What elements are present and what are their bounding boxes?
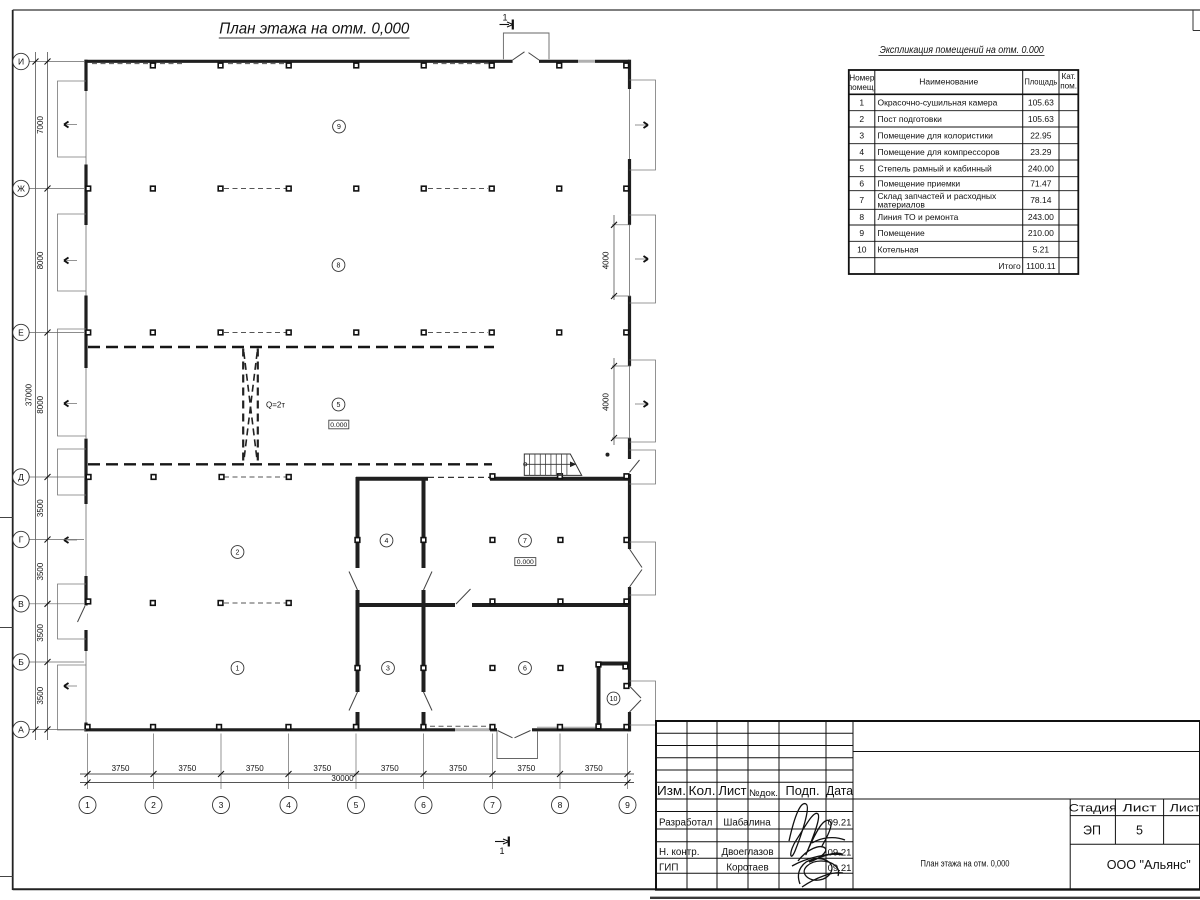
svg-text:210.00: 210.00	[1028, 228, 1054, 238]
svg-text:1: 1	[236, 666, 240, 673]
svg-text:3: 3	[219, 800, 224, 810]
svg-text:78.14: 78.14	[1030, 195, 1052, 205]
svg-text:240.00: 240.00	[1028, 163, 1054, 173]
svg-text:3500: 3500	[36, 623, 45, 641]
svg-text:3: 3	[859, 130, 864, 140]
svg-text:2: 2	[151, 800, 156, 810]
svg-text:Окрасочно-сушильная камера: Окрасочно-сушильная камера	[878, 98, 998, 108]
svg-text:Н. контр.: Н. контр.	[659, 847, 699, 858]
svg-text:Д: Д	[18, 472, 24, 482]
svg-text:Разработал: Разработал	[659, 818, 713, 829]
svg-text:Б: Б	[18, 657, 24, 667]
svg-text:Кол.: Кол.	[689, 784, 716, 798]
svg-text:9: 9	[625, 800, 630, 810]
svg-text:Степель рамный и кабинный: Степель рамный и кабинный	[878, 163, 993, 173]
svg-text:Изм.: Изм.	[657, 784, 686, 798]
svg-text:ГИП: ГИП	[659, 863, 678, 874]
svg-text:8: 8	[337, 263, 341, 270]
svg-text:Помещение для колористики: Помещение для колористики	[878, 130, 994, 140]
svg-text:23.29: 23.29	[1030, 147, 1052, 157]
svg-text:3500: 3500	[36, 499, 45, 517]
svg-text:Коротаев: Коротаев	[726, 863, 768, 874]
svg-text:2: 2	[236, 550, 240, 557]
svg-text:В: В	[18, 599, 24, 609]
svg-text:Листов: Листов	[1170, 802, 1200, 814]
svg-text:№док.: №док.	[749, 788, 778, 799]
svg-text:7: 7	[490, 800, 495, 810]
svg-text:Ж: Ж	[17, 184, 25, 194]
svg-text:помещ.: помещ.	[848, 83, 876, 92]
svg-text:Экспликация помещений на отм.: Экспликация помещений на отм. 0.000	[880, 45, 1044, 56]
svg-text:Помещение приемки: Помещение приемки	[878, 179, 961, 189]
svg-text:Пост подготовки: Пост подготовки	[878, 114, 943, 124]
svg-text:3750: 3750	[449, 764, 467, 773]
svg-text:А: А	[18, 725, 24, 735]
svg-text:Лист: Лист	[1123, 802, 1157, 814]
svg-text:1100.11: 1100.11	[1026, 261, 1056, 271]
svg-text:Номер: Номер	[849, 74, 875, 83]
svg-text:Котельная: Котельная	[878, 245, 920, 255]
svg-text:материалов: материалов	[878, 199, 926, 209]
svg-text:1: 1	[859, 98, 864, 108]
svg-text:1: 1	[85, 800, 90, 810]
svg-text:ООО "Альянс": ООО "Альянс"	[1107, 858, 1191, 872]
svg-text:ЭП: ЭП	[1083, 824, 1101, 838]
svg-text:Помещение: Помещение	[878, 228, 925, 238]
svg-text:9: 9	[337, 124, 341, 131]
svg-text:105.63: 105.63	[1028, 98, 1054, 108]
svg-text:Двоеглазов: Двоеглазов	[721, 847, 773, 858]
svg-text:Площадь: Площадь	[1024, 77, 1057, 87]
svg-text:Наименование: Наименование	[919, 77, 978, 87]
svg-text:71.47: 71.47	[1030, 179, 1052, 189]
svg-text:5: 5	[859, 163, 864, 173]
svg-text:243.00: 243.00	[1028, 212, 1054, 222]
svg-text:3: 3	[386, 666, 390, 673]
svg-text:Е: Е	[18, 328, 24, 338]
svg-text:4000: 4000	[602, 393, 611, 411]
svg-text:5: 5	[1136, 824, 1143, 838]
svg-text:6: 6	[421, 800, 426, 810]
svg-text:И: И	[18, 57, 24, 67]
svg-text:Шабалина: Шабалина	[723, 818, 771, 829]
svg-text:Помещение для компрессоров: Помещение для компрессоров	[878, 147, 1001, 157]
svg-text:10: 10	[857, 245, 867, 255]
svg-text:9: 9	[859, 228, 864, 238]
svg-text:Г: Г	[19, 535, 24, 545]
svg-text:0.000: 0.000	[330, 422, 347, 429]
svg-text:3750: 3750	[381, 764, 399, 773]
svg-text:Линия ТО и ремонта: Линия ТО и ремонта	[878, 212, 959, 222]
svg-text:30000: 30000	[331, 774, 354, 783]
svg-text:5.21: 5.21	[1033, 245, 1050, 255]
svg-text:Дата: Дата	[826, 784, 853, 798]
svg-text:8: 8	[859, 212, 864, 222]
svg-text:4: 4	[859, 147, 864, 157]
svg-text:3500: 3500	[36, 562, 45, 580]
svg-text:7: 7	[859, 195, 864, 205]
svg-text:3750: 3750	[585, 764, 603, 773]
svg-text:Лист: Лист	[719, 784, 747, 798]
svg-text:Итого: Итого	[998, 261, 1021, 271]
svg-text:3750: 3750	[246, 764, 264, 773]
svg-text:1: 1	[499, 846, 504, 856]
svg-text:3500: 3500	[36, 686, 45, 704]
svg-text:6: 6	[859, 179, 864, 189]
svg-text:Кат.: Кат.	[1062, 72, 1076, 81]
svg-text:3750: 3750	[112, 764, 130, 773]
svg-text:Подп.: Подп.	[786, 784, 820, 798]
svg-text:4000: 4000	[602, 251, 611, 269]
svg-text:План этажа на отм. 0,000: План этажа на отм. 0,000	[219, 21, 409, 38]
svg-text:4: 4	[286, 800, 291, 810]
svg-text:105.63: 105.63	[1028, 114, 1054, 124]
svg-text:Стадия: Стадия	[1069, 802, 1117, 814]
svg-text:22.95: 22.95	[1030, 130, 1052, 140]
svg-text:6: 6	[523, 666, 527, 673]
svg-text:3750: 3750	[517, 764, 535, 773]
svg-text:37000: 37000	[25, 383, 34, 406]
svg-text:8000: 8000	[36, 251, 45, 269]
svg-text:5: 5	[337, 402, 341, 409]
svg-text:8000: 8000	[36, 395, 45, 413]
svg-text:пом.: пом.	[1060, 82, 1077, 91]
svg-text:Q=2т: Q=2т	[266, 401, 285, 410]
svg-text:0.000: 0.000	[517, 559, 534, 566]
svg-text:5: 5	[354, 800, 359, 810]
svg-text:10: 10	[610, 696, 618, 703]
svg-text:План этажа на отм. 0,000: План этажа на отм. 0,000	[921, 858, 1010, 868]
svg-text:7: 7	[523, 538, 527, 545]
svg-text:3750: 3750	[313, 764, 331, 773]
svg-text:4: 4	[385, 538, 389, 545]
svg-text:7000: 7000	[36, 116, 45, 134]
svg-text:3750: 3750	[178, 764, 196, 773]
svg-text:8: 8	[558, 800, 563, 810]
svg-text:1: 1	[502, 13, 507, 23]
svg-text:2: 2	[859, 114, 864, 124]
